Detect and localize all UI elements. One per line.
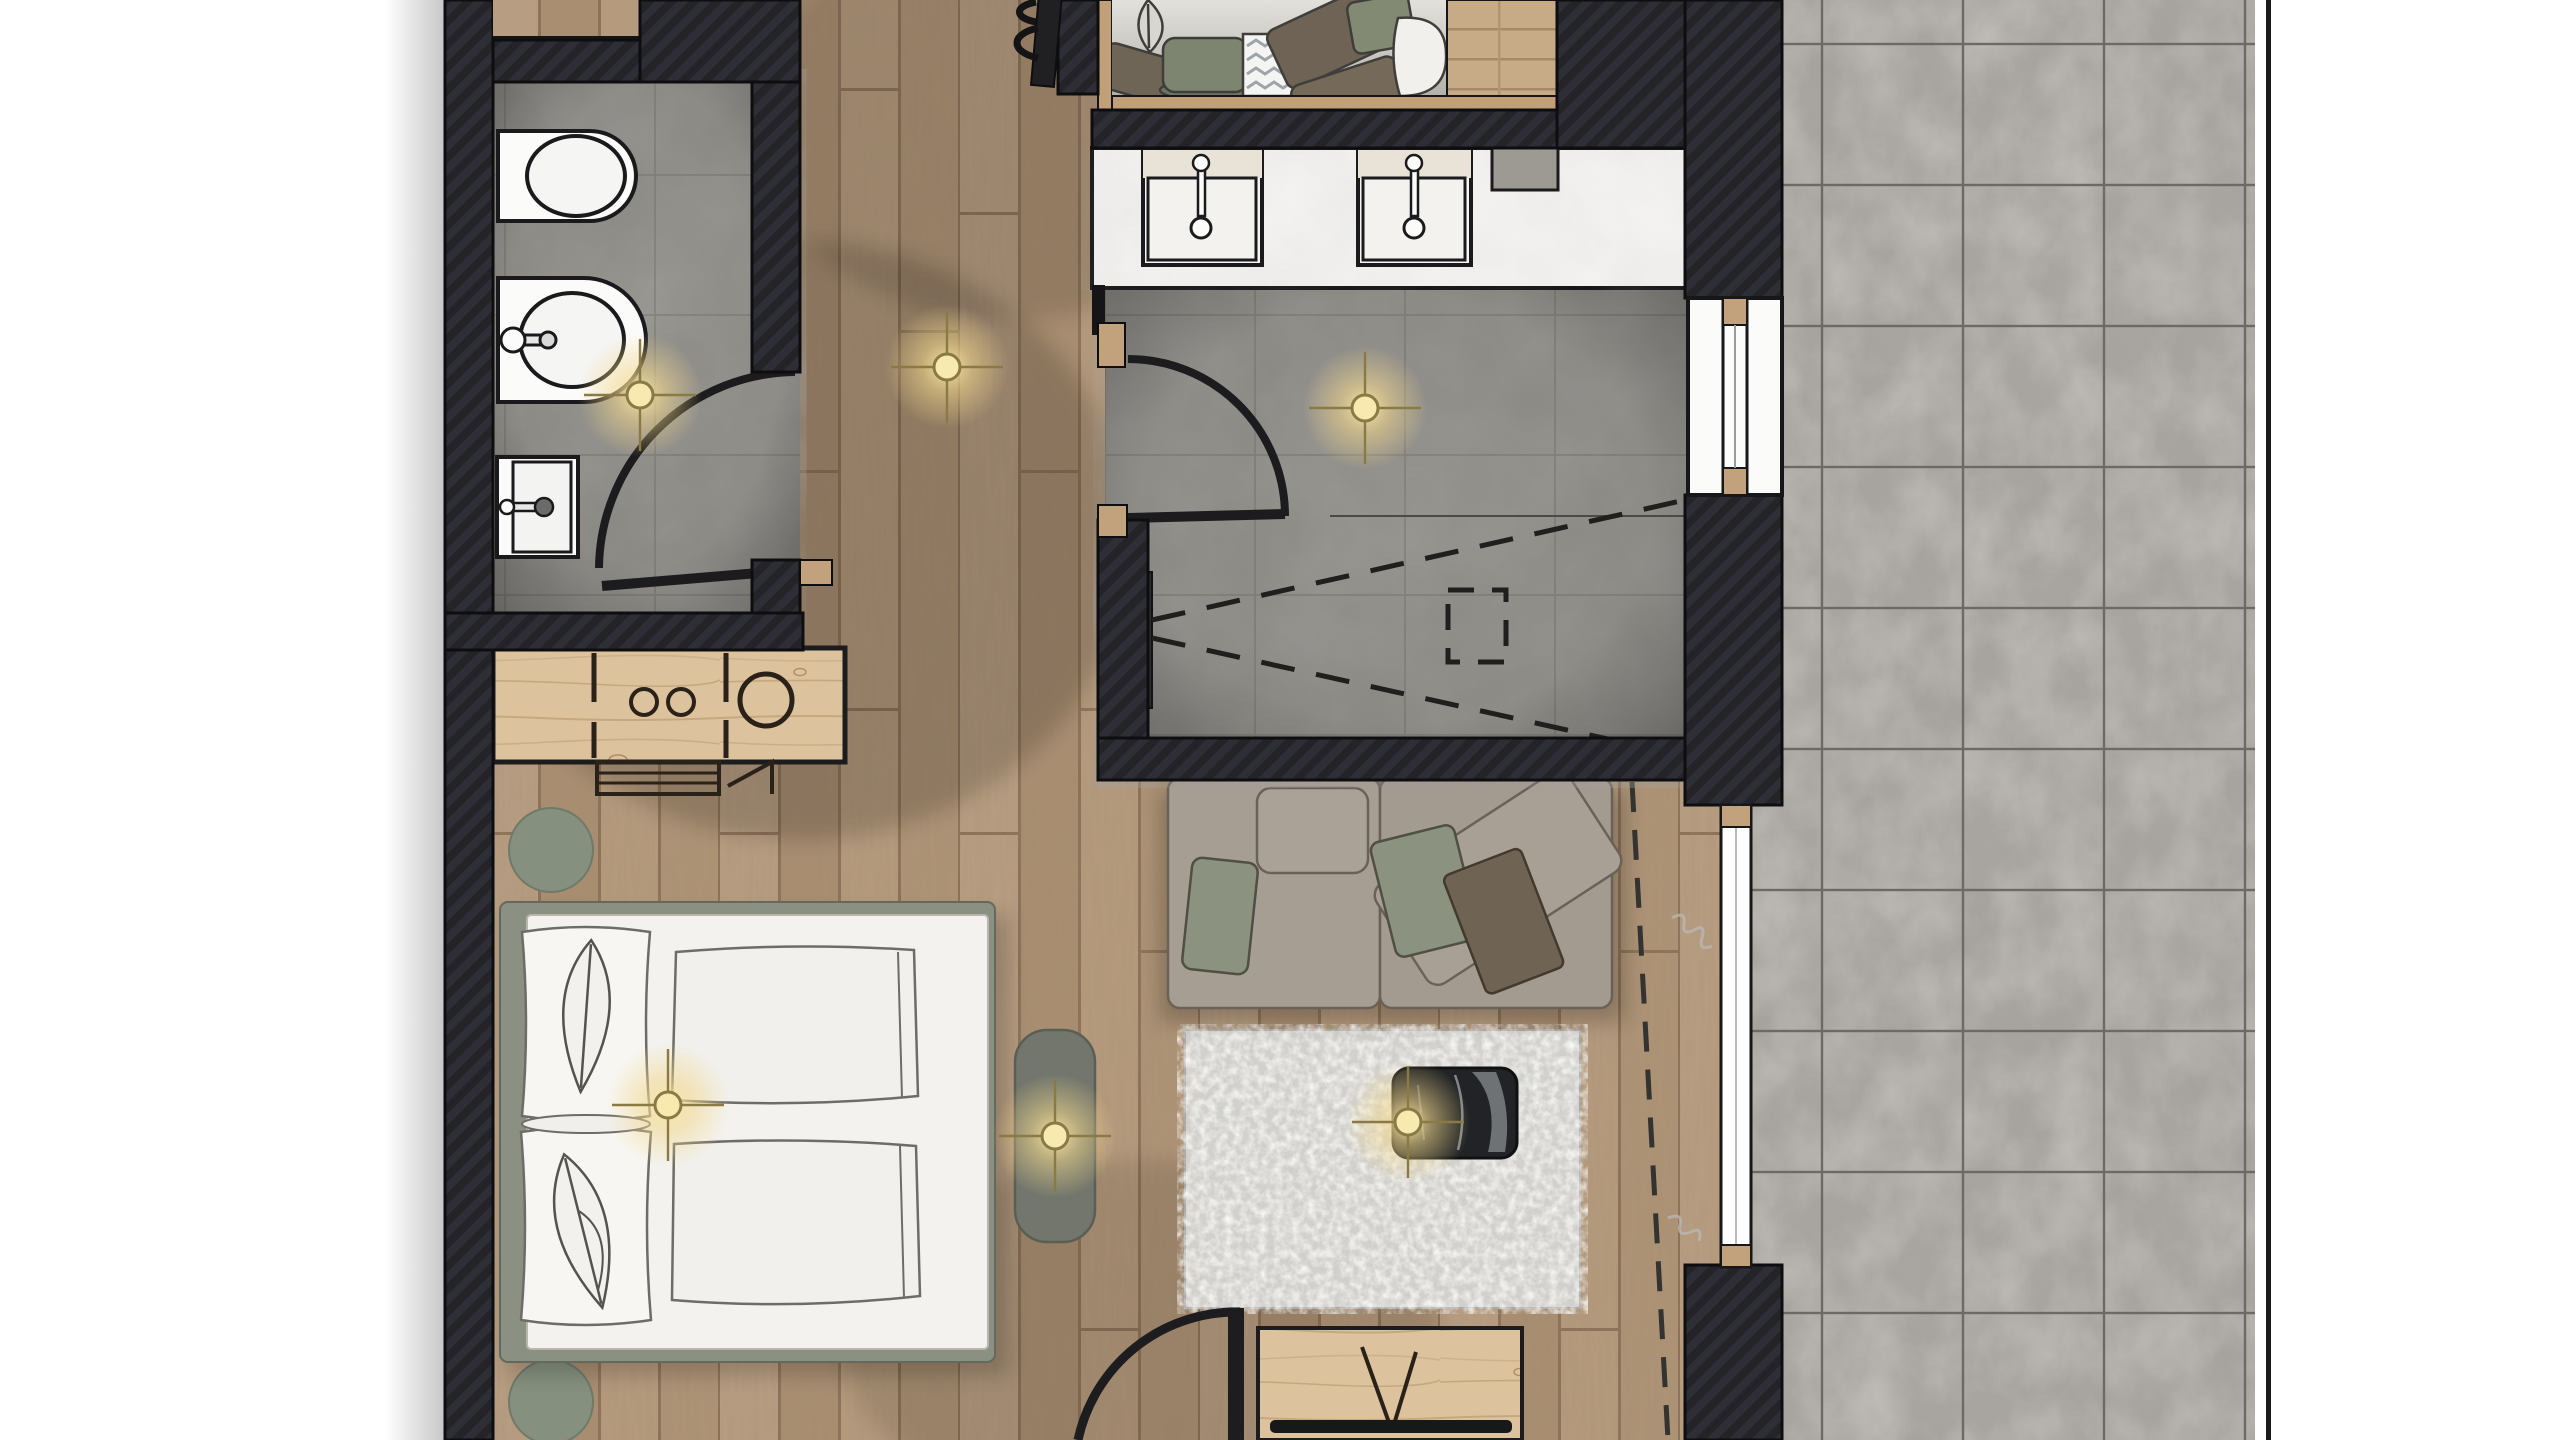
drain-icon — [1191, 218, 1211, 238]
ceiling-light — [1303, 346, 1427, 470]
toilet — [498, 131, 636, 221]
terrace — [1750, 0, 2271, 1440]
drain-icon — [1404, 218, 1424, 238]
washbasin-faucet-icon — [500, 500, 514, 514]
tv — [1270, 1420, 1512, 1433]
window-sill-wood — [1721, 1245, 1751, 1267]
door-jamb-wood — [800, 560, 832, 585]
door-leaf — [1128, 514, 1285, 518]
ottoman — [509, 808, 593, 892]
faucet-icon — [1406, 155, 1422, 171]
window-sill-wood — [1721, 805, 1751, 827]
door-jamb-wood — [1098, 505, 1127, 537]
ceiling-light — [1346, 1060, 1470, 1184]
ceiling-light — [993, 1074, 1117, 1198]
bathroom-large — [1092, 148, 1688, 778]
floor-plan-drawing: floor-plan — [0, 0, 2560, 1440]
white-duvet — [1393, 18, 1446, 96]
wall-niche — [1492, 148, 1558, 190]
vanity-sink-right — [1358, 150, 1471, 265]
wall-right-of-closet — [1557, 0, 1688, 148]
window-sill-wood — [1723, 468, 1747, 495]
ceiling-light — [885, 305, 1009, 429]
adjacent-room-floor — [493, 0, 640, 38]
vanity-sink-left — [1143, 150, 1262, 265]
door-leaf — [1228, 1308, 1244, 1440]
wall-east-middle — [1685, 495, 1782, 805]
window-sill-wood — [1723, 298, 1747, 325]
floor-plan-stage: floor-plan — [0, 0, 2560, 1440]
terrace-tile-grid — [1750, 0, 2255, 1440]
modular-sofa — [1160, 766, 1627, 1022]
faucet-icon — [1193, 155, 1209, 171]
wall-left — [445, 0, 493, 1440]
green-pillow — [1181, 857, 1258, 975]
bidet-faucet-icon — [501, 328, 525, 352]
wall-bathroom-small-right — [752, 82, 800, 372]
window-bathroom — [1688, 298, 1782, 495]
door-jamb-wood — [1098, 323, 1125, 367]
closet-frame — [1098, 0, 1112, 110]
closet-base-rail — [1112, 96, 1557, 110]
green-pillow-stack — [1163, 38, 1247, 92]
terrace-railing-edge — [2266, 0, 2271, 1440]
folded-duvet — [672, 1140, 920, 1304]
wall-east-bottom — [1685, 1265, 1782, 1440]
toilet-bowl — [527, 136, 625, 216]
wall-bathroom-large-bottom — [1098, 738, 1688, 780]
washbasin — [497, 457, 578, 557]
wall-bathroom-small-bottom — [445, 613, 803, 650]
tv-sideboard — [1258, 1328, 1522, 1440]
plan-left-shadow — [385, 0, 445, 1440]
bedroom — [500, 808, 1008, 1440]
double-vanity — [1092, 148, 1688, 288]
wall-corridor-top-right — [1058, 0, 1098, 94]
sofa-back-cushion — [1257, 788, 1368, 873]
wall-east-top — [1685, 0, 1782, 298]
wall-corridor-top-left — [640, 0, 800, 82]
closet-wood-deck — [1447, 0, 1557, 96]
ceiling-light — [578, 333, 702, 457]
ceiling-light — [606, 1043, 730, 1167]
window-living — [1721, 805, 1751, 1267]
double-bed — [500, 902, 995, 1362]
